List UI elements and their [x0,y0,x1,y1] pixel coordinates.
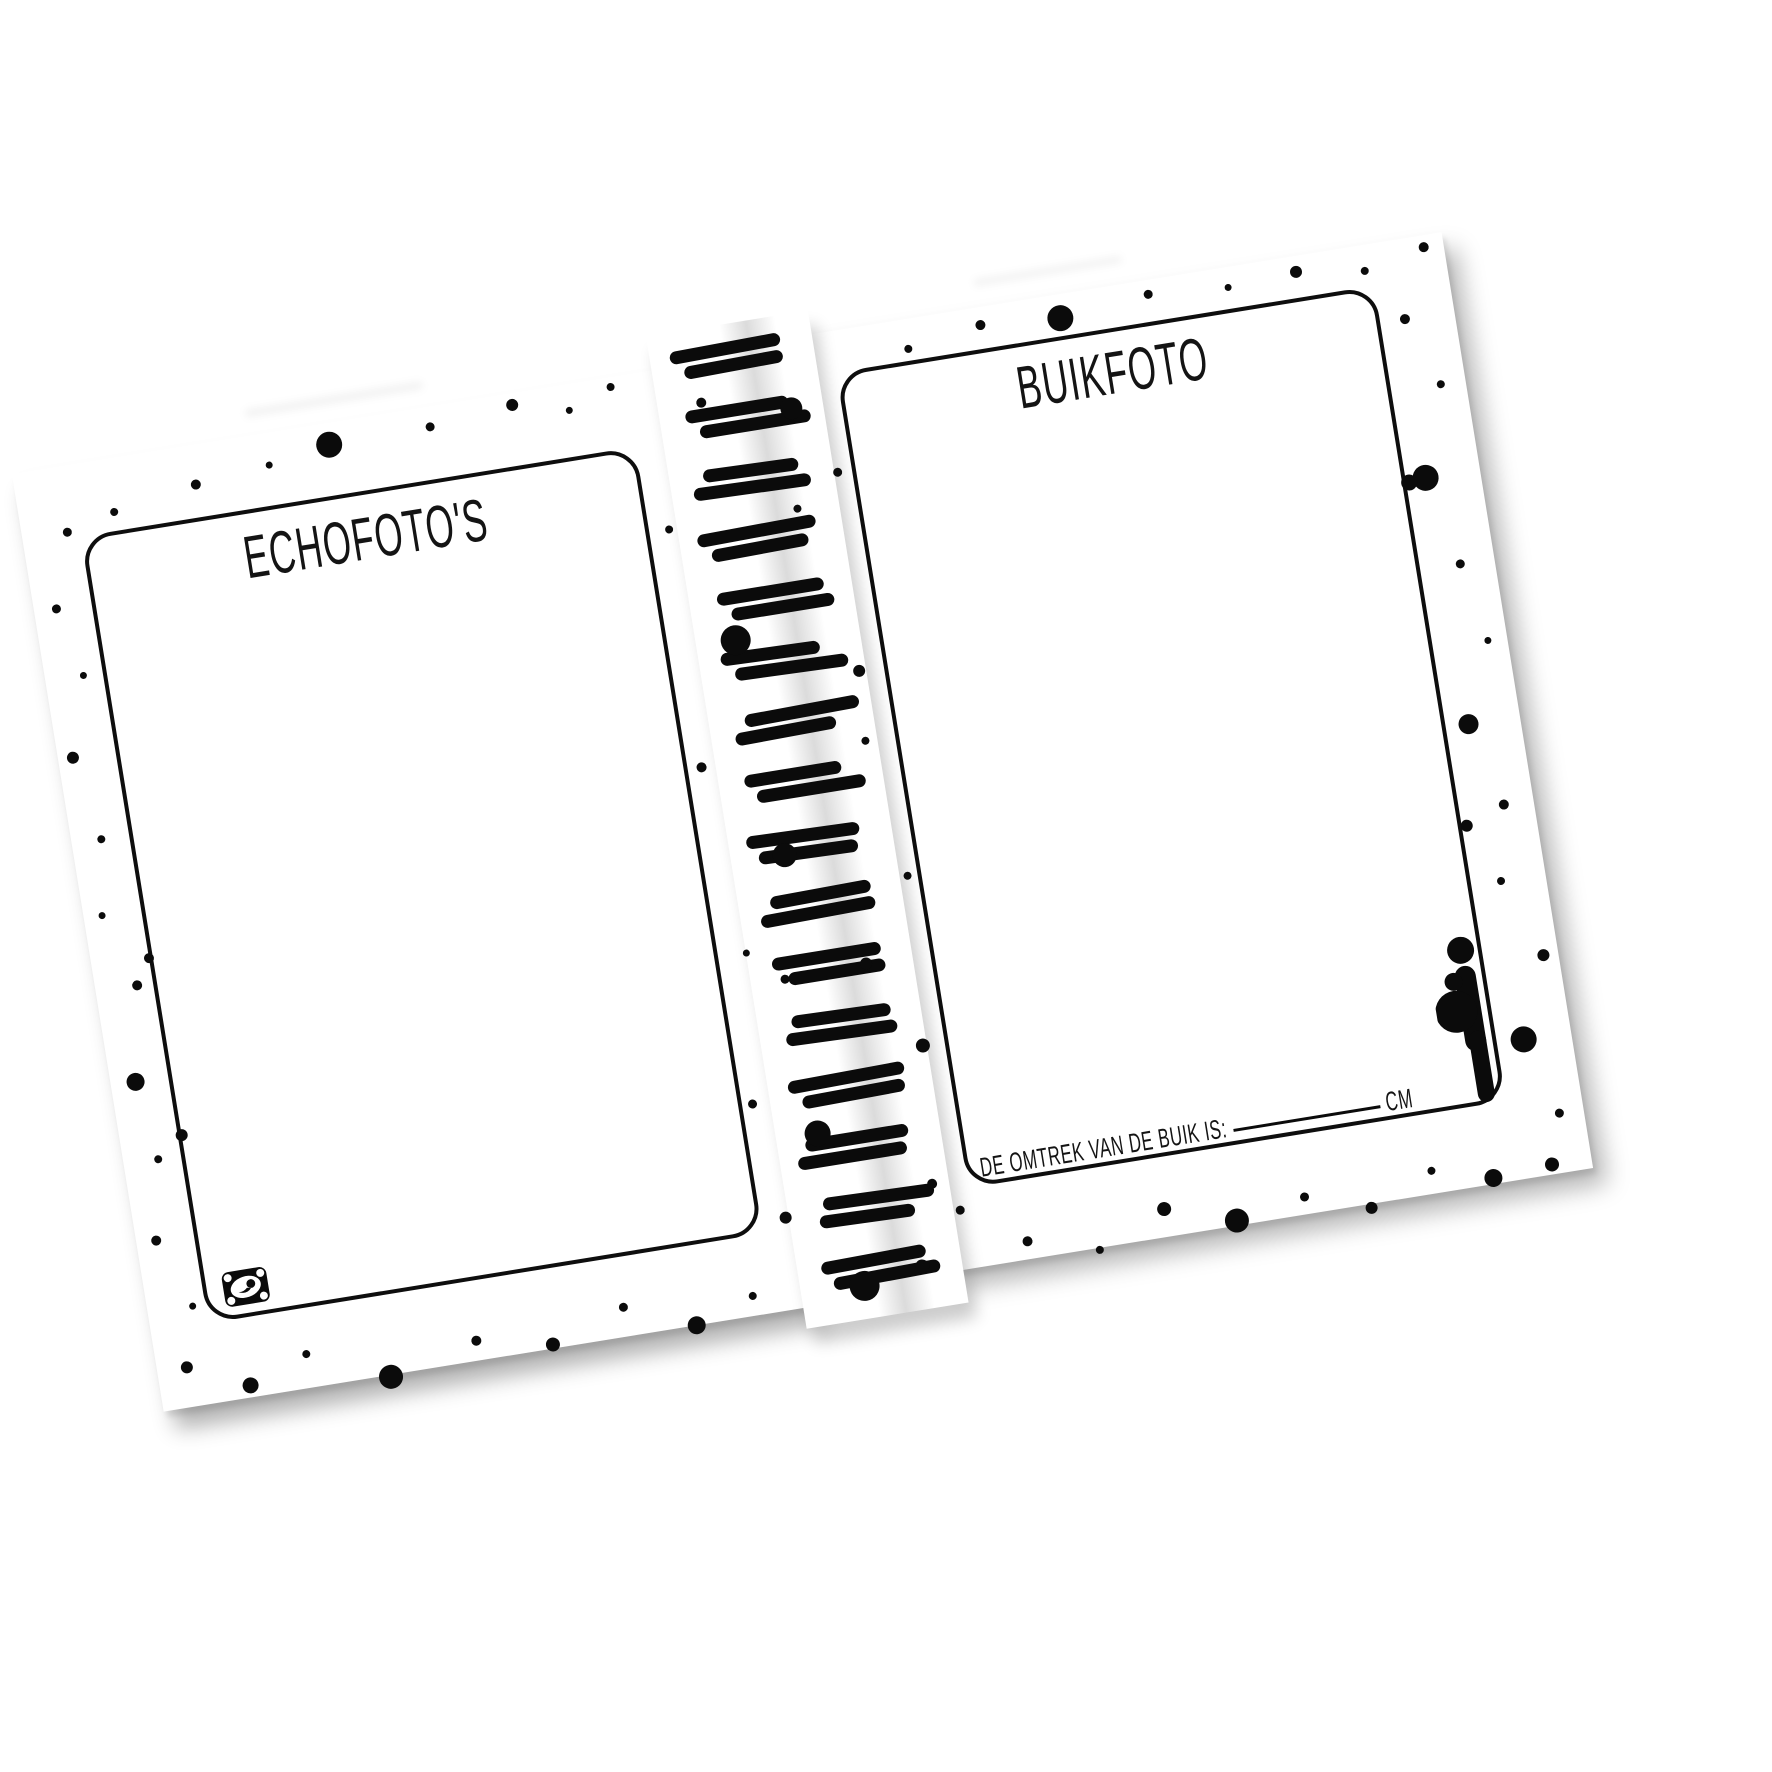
fill-in-blank [1233,1105,1380,1132]
ultrasound-stamp-icon [220,1265,271,1308]
page-edge-smudge [973,256,1122,287]
open-notebook: ECHOFOTO'S BUIKFOTO [9,223,1596,1427]
belly-measure-unit: CM [1383,1083,1415,1117]
notebook-photo: ECHOFOTO'S BUIKFOTO [0,0,1772,1772]
